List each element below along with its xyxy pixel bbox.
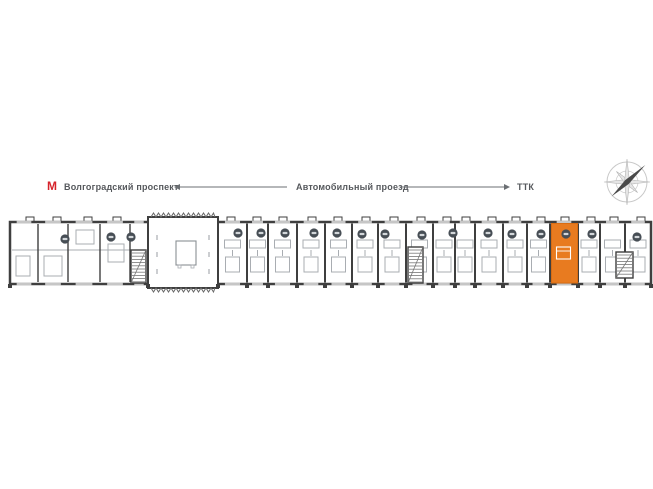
unit-badge-text [420,234,425,236]
wall-tick [245,284,249,288]
wall-tick [501,284,505,288]
unit-badge-text [564,233,569,235]
lobby [148,217,218,288]
unit-badge-text [63,238,68,240]
wall-tick [525,284,529,288]
wall-tick [649,284,653,288]
unit-badge-text [451,232,456,234]
wall-tick [453,284,457,288]
floor-plan[interactable] [0,0,653,489]
arrow-right-head-icon [504,184,510,190]
unit-badge-text [109,236,114,238]
wall-tick [323,284,327,288]
unit-badge-text [510,233,515,235]
unit-badge-text [312,232,317,234]
arrow-left-head-icon [174,184,180,190]
wall-tick [623,284,627,288]
wall-tick [598,284,602,288]
unit-badge-text [590,233,595,235]
wall-tick [404,284,408,288]
wall-tick [266,284,270,288]
wall-tick [8,284,12,288]
unit-badge-text [259,232,264,234]
unit-badge-text [236,232,241,234]
unit-badge-text [539,233,544,235]
wall-tick [431,284,435,288]
compass-rose-icon [604,159,650,205]
unit-badge-text [335,232,340,234]
wall-tick [216,284,220,288]
wall-tick [473,284,477,288]
building-plan [8,213,653,292]
unit-badge-text [383,233,388,235]
unit-badge-text [129,236,134,238]
wall-tick [146,284,150,288]
wall-tick [350,284,354,288]
unit-badge-text [360,233,365,235]
direction-arrows [174,184,510,190]
wall-tick [295,284,299,288]
unit-badge-text [486,232,491,234]
floorplan-page: М Волгоградский проспект Автомобильный п… [0,0,653,489]
unit-badge-text [283,232,288,234]
wall-tick [376,284,380,288]
wall-tick [576,284,580,288]
unit-badge-text [635,236,640,238]
wall-tick [548,284,552,288]
